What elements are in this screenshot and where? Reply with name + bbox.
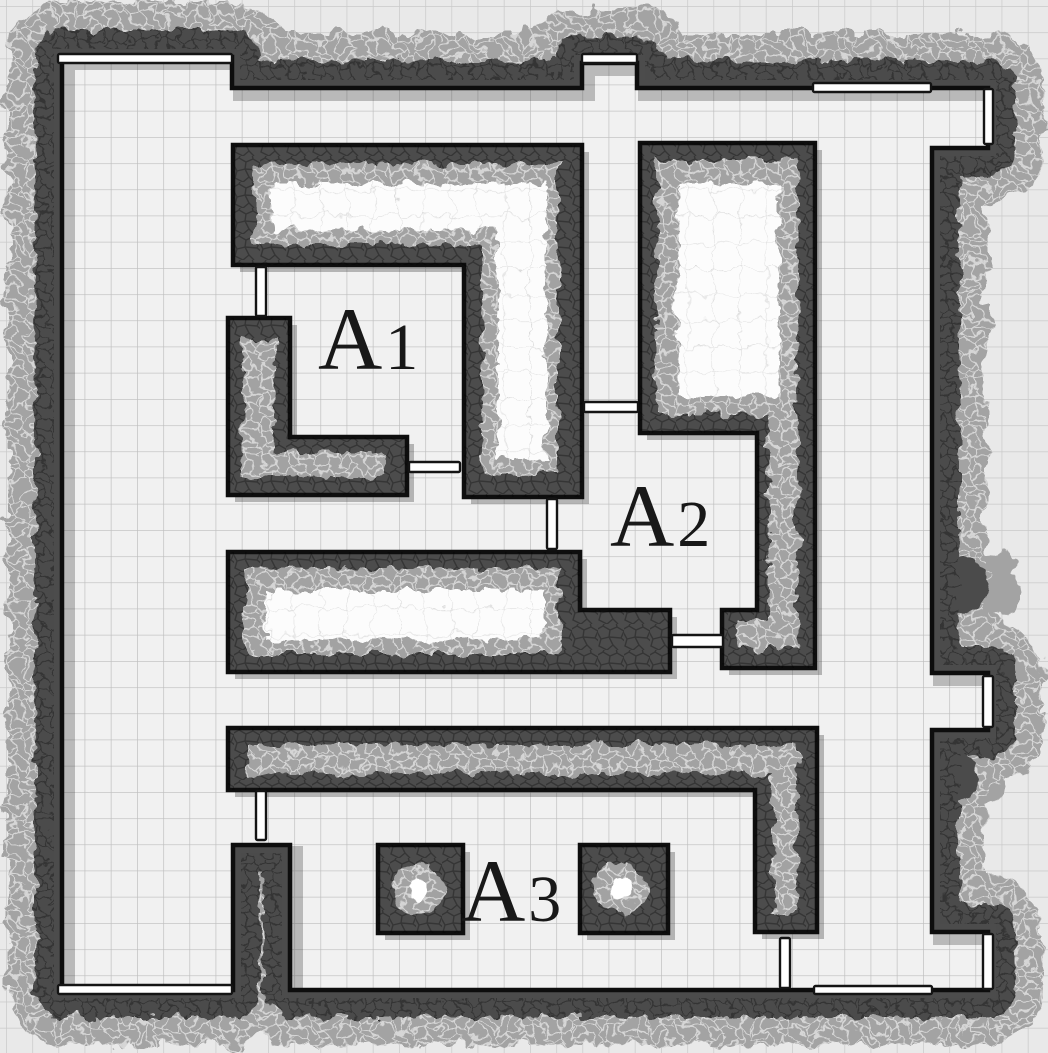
door-a2-southeast xyxy=(672,635,723,647)
door-left-room-north xyxy=(58,54,232,63)
door-a1-a2-passage xyxy=(547,499,557,549)
hollow-core-ne-room xyxy=(678,184,778,396)
door-west-passage-a3 xyxy=(256,791,266,840)
door-ne-corridor-east xyxy=(984,89,993,144)
door-south-corridor xyxy=(780,938,790,988)
door-se-corner-east xyxy=(983,934,993,989)
door-south-wall-secret xyxy=(814,986,932,994)
door-corridor-to-a2 xyxy=(584,402,638,412)
door-a1-south xyxy=(409,462,460,472)
pillar-a3-west xyxy=(378,845,470,940)
door-left-room-south xyxy=(58,985,232,994)
pillar-a3-east xyxy=(580,845,675,940)
door-east-corridor-east xyxy=(983,676,993,727)
door-ne-corridor-north xyxy=(813,83,931,92)
door-north-corridor-top xyxy=(582,54,637,63)
hollow-core-middle xyxy=(266,590,544,640)
door-a1-west xyxy=(256,267,266,316)
dungeon-map-svg: A1 A2 A3 xyxy=(0,0,1048,1053)
